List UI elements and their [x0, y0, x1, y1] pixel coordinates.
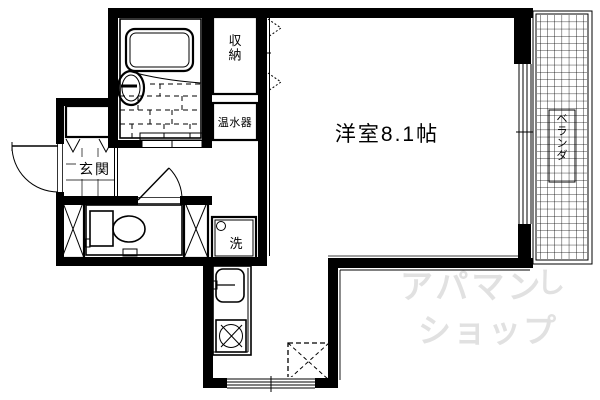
wall-top: [108, 8, 533, 18]
entrance-label: 玄関: [79, 161, 111, 177]
main-room-label: 洋室8.1帖: [335, 123, 439, 146]
wall-room-left: [258, 8, 267, 266]
veranda-label: ベランダ: [557, 113, 568, 162]
floorplan: ベランダ: [0, 0, 600, 400]
wall-room-bottom: [328, 258, 533, 268]
watermark-swirl: し: [537, 267, 565, 298]
wall-genkan-top: [56, 98, 118, 106]
wall-corridor-right: [328, 258, 338, 382]
storage-label: 収納: [228, 33, 241, 63]
washer-label: 洗: [229, 236, 242, 251]
wall-left-upper: [56, 98, 64, 144]
wall-bath-right: [202, 8, 212, 148]
wall-right-upper: [514, 8, 531, 64]
water-heater-label: 温水器: [218, 116, 253, 129]
veranda: ベランダ: [533, 11, 592, 264]
watermark-line1: アパマン: [400, 268, 543, 305]
watermark-line2: ショップ: [418, 312, 558, 349]
